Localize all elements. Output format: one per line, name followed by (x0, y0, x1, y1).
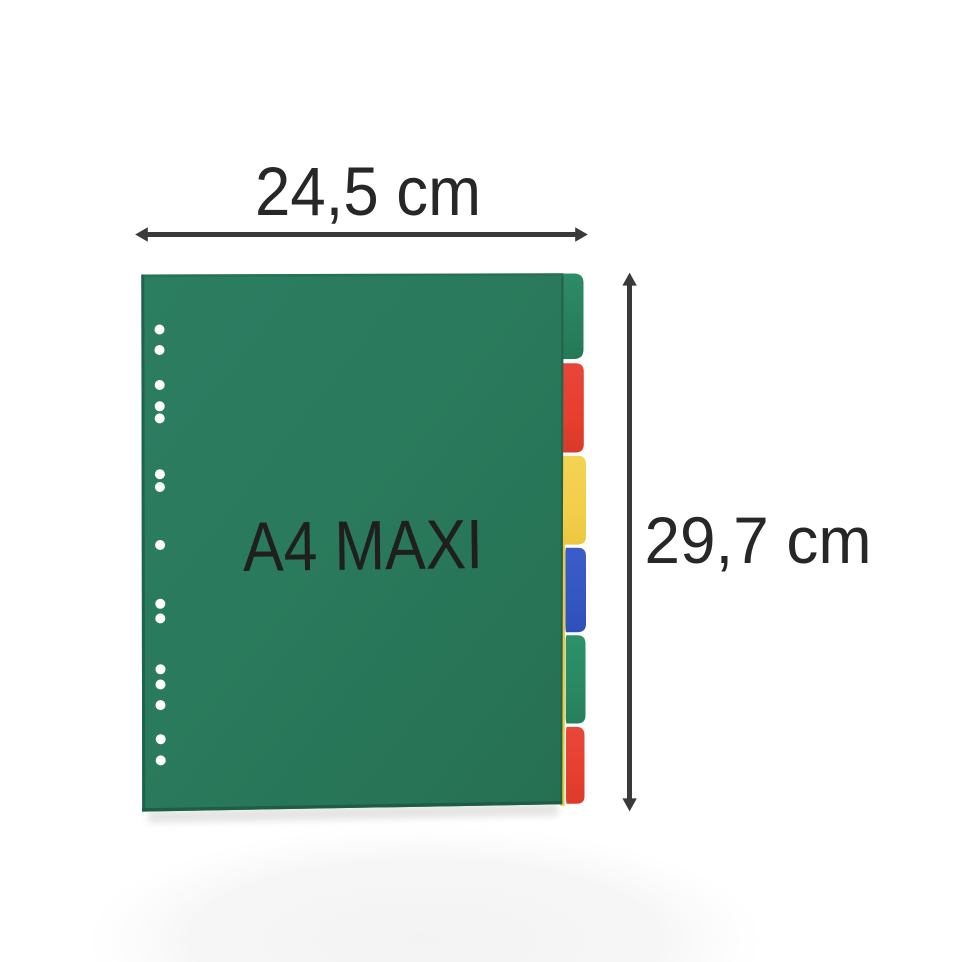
svg-text:29,7 cm: 29,7 cm (645, 504, 872, 577)
svg-text:24,5 cm: 24,5 cm (255, 153, 481, 230)
svg-text:A4 MAXI: A4 MAXI (243, 505, 484, 586)
